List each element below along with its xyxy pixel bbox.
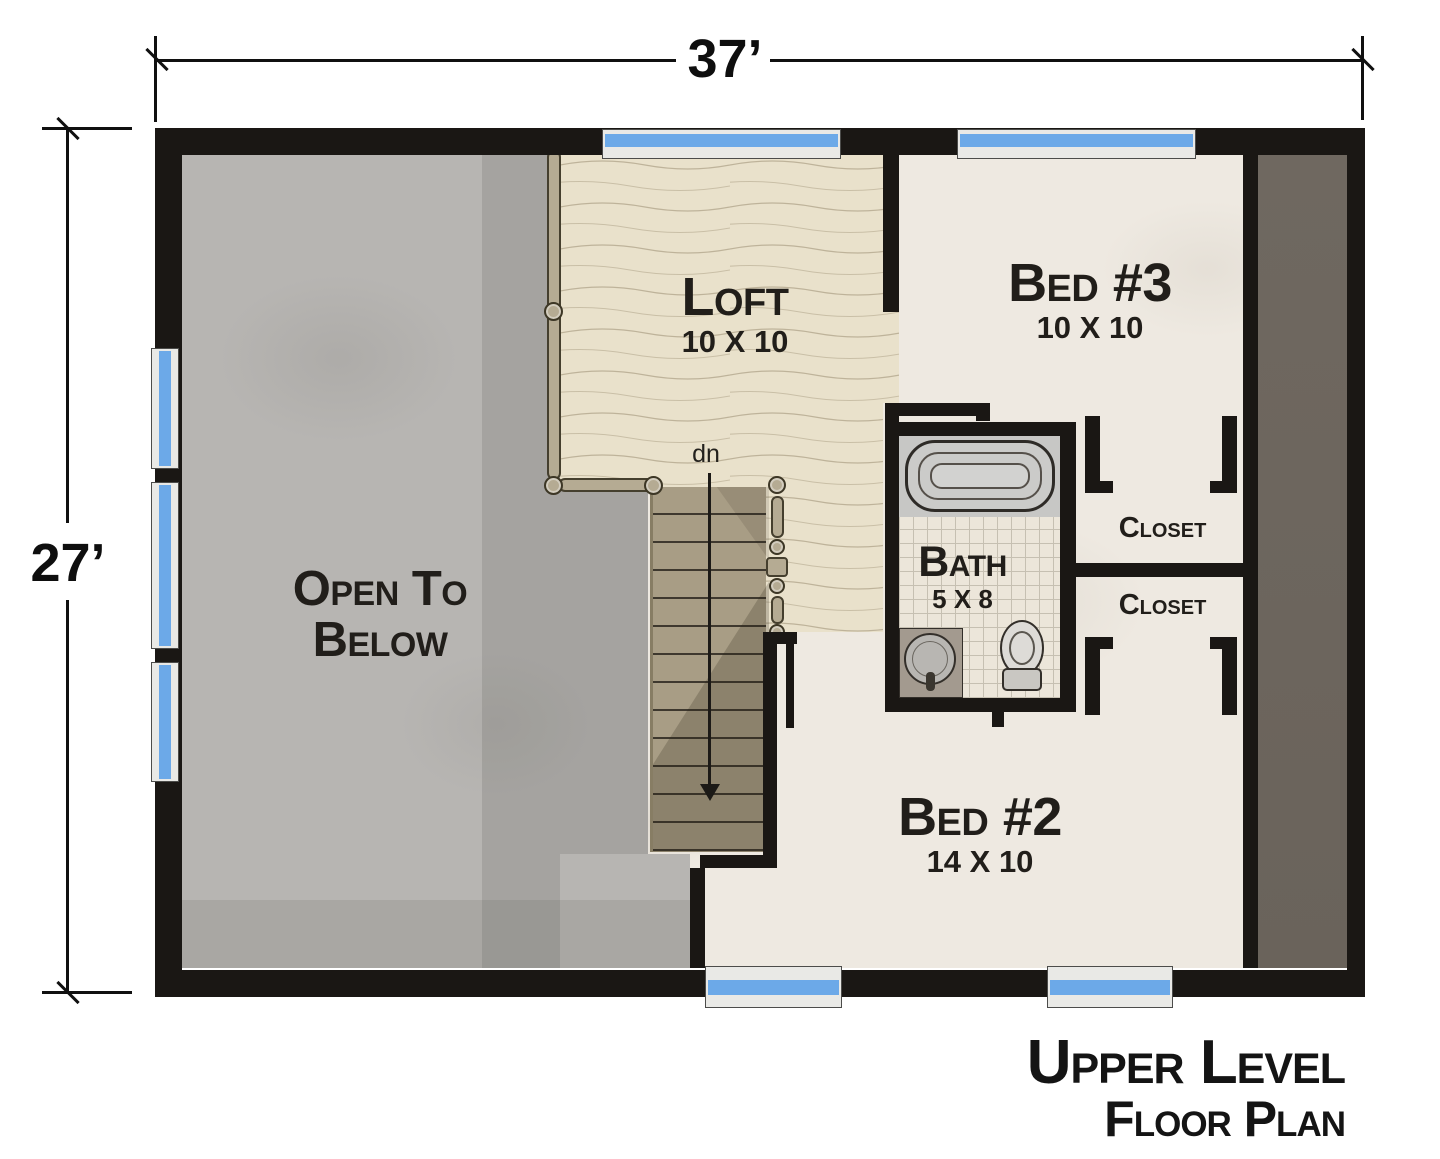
window-glass [605, 134, 838, 147]
toilet-seat [1009, 631, 1035, 665]
loft-railing-horizontal [558, 478, 654, 492]
dimension-extension [1361, 36, 1364, 120]
window-bottom-left [705, 966, 842, 1008]
window-bottom-right [1047, 966, 1173, 1008]
wall-bed2-left [690, 868, 705, 968]
bathtub-basin [930, 463, 1030, 489]
floor-plan-page: dn [0, 0, 1440, 1159]
window-glass [1050, 980, 1170, 995]
shading-band-bottom [182, 900, 690, 968]
room-size-bed3: 10 X 10 [960, 312, 1220, 343]
wall-bath-bottom [885, 698, 1076, 712]
window-left-1 [151, 348, 179, 469]
wall-under-stairs [700, 855, 777, 868]
room-label-closet-lower: Closet [1080, 591, 1245, 620]
room-label-bed3: Bed #3 [960, 256, 1220, 310]
window-glass [960, 134, 1193, 147]
stair-railing-segment [771, 496, 784, 538]
plan-title-line2: Floor Plan [1027, 1094, 1345, 1144]
dimension-height-line-bottom [66, 600, 69, 993]
closet-lower-jamb-right-foot [1210, 637, 1237, 649]
wall-bed3-south-nub [976, 403, 990, 421]
room-label-bed2: Bed #2 [840, 790, 1120, 844]
closet-lower-jamb-left-foot [1085, 637, 1113, 649]
plan-title: Upper Level Floor Plan [1027, 1032, 1345, 1144]
stair-railing-segment [771, 596, 784, 624]
toilet-tank [1002, 668, 1042, 691]
dimension-extension [154, 36, 157, 122]
room-size-bath: 5 X 8 [880, 586, 1045, 612]
window-top-bed3 [957, 129, 1196, 159]
stair-arrow-line [708, 473, 711, 784]
dimension-width-label: 37’ [660, 32, 790, 86]
window-left-2 [151, 482, 179, 649]
room-label-open-below-line2: Below [240, 616, 520, 665]
railing-post [544, 302, 563, 321]
wall-closet-divider [1060, 563, 1243, 577]
sink-faucet [926, 672, 935, 691]
window-glass [708, 980, 839, 995]
wall-bath-top [899, 422, 1076, 436]
room-size-loft: 10 X 10 [640, 326, 830, 357]
window-left-3 [151, 662, 179, 782]
stair-arrow-head [700, 784, 720, 801]
attic-space [1258, 155, 1347, 968]
bed2-door-leaf [786, 644, 794, 728]
dimension-extension [42, 127, 132, 130]
dimension-height-label: 27’ [18, 536, 118, 590]
wall-stair-right-stub [763, 632, 797, 644]
plan-title-line1: Upper Level [1027, 1032, 1345, 1094]
railing-post [769, 539, 785, 555]
stairs-down-label: dn [676, 440, 736, 469]
wall-outer-right [1347, 128, 1365, 997]
dimension-extension [42, 991, 132, 994]
room-label-closet-upper: Closet [1080, 514, 1245, 543]
room-label-open-below-line1: Open To [240, 565, 520, 614]
room-label-loft: Loft [640, 270, 830, 324]
bathtub [905, 440, 1055, 512]
dimension-width-line-right [770, 59, 1362, 62]
dimension-height-line-top [66, 129, 69, 523]
window-glass [159, 485, 171, 646]
railing-post [644, 476, 663, 495]
closet-upper-jamb-right-foot [1210, 481, 1237, 493]
window-glass [159, 665, 171, 779]
bath-door-jamb [992, 710, 1004, 727]
window-glass [159, 351, 171, 466]
shading-band-mid [560, 487, 650, 854]
railing-post [768, 476, 786, 494]
wall-bed3-south [899, 403, 984, 416]
room-size-bed2: 14 X 10 [840, 846, 1120, 877]
railing-post [544, 476, 563, 495]
dimension-width-line-left [156, 59, 676, 62]
closet-upper-jamb-left-foot [1085, 481, 1113, 493]
stair-railing-block [766, 557, 788, 577]
wall-loft-bed3 [883, 155, 899, 312]
room-label-bath: Bath [880, 541, 1045, 584]
railing-post [769, 578, 785, 594]
window-top-loft [602, 129, 841, 159]
wall-east-interior [1243, 155, 1258, 968]
wall-stair-right [763, 632, 777, 855]
